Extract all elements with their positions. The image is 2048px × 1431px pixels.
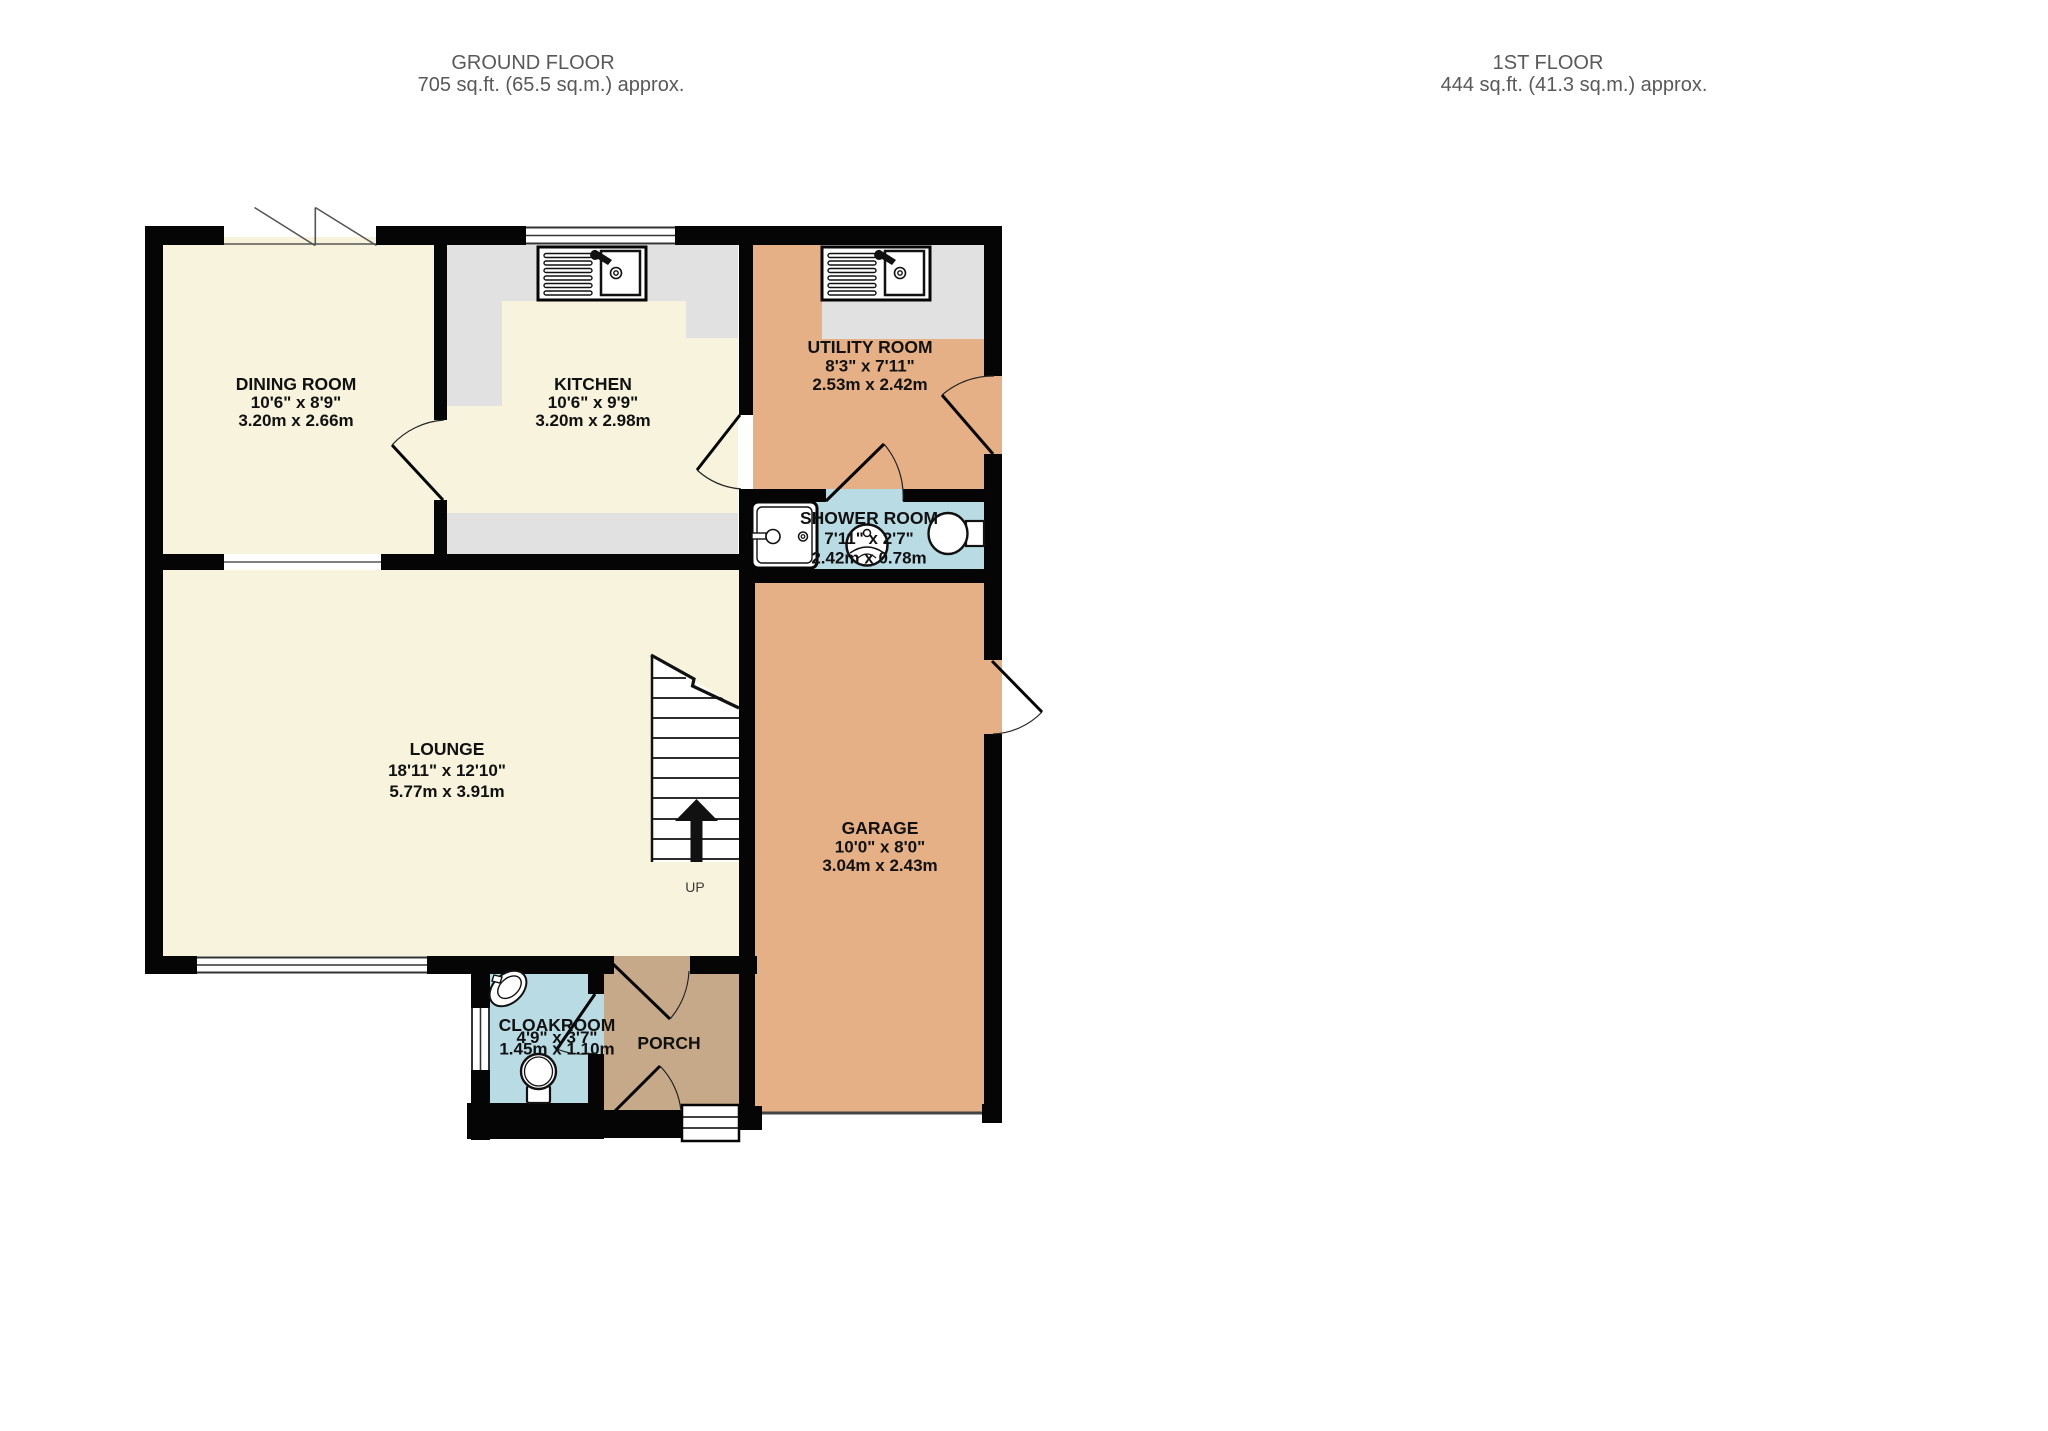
svg-text:2.42m x 0.78m: 2.42m x 0.78m	[811, 549, 926, 568]
svg-text:1.45m x 1.10m: 1.45m x 1.10m	[499, 1040, 614, 1059]
svg-text:3.04m x 2.43m: 3.04m x 2.43m	[822, 856, 937, 875]
svg-text:GARAGE: GARAGE	[842, 818, 919, 838]
svg-text:18'11" x 12'10": 18'11" x 12'10"	[388, 761, 506, 780]
svg-text:5.77m x 3.91m: 5.77m x 3.91m	[389, 782, 504, 801]
svg-text:705 sq.ft. (65.5 sq.m.) approx: 705 sq.ft. (65.5 sq.m.) approx.	[418, 74, 685, 96]
svg-text:444 sq.ft. (41.3 sq.m.) approx: 444 sq.ft. (41.3 sq.m.) approx.	[1441, 74, 1708, 96]
svg-text:GROUND FLOOR: GROUND FLOOR	[451, 52, 614, 74]
svg-text:UP: UP	[685, 879, 704, 895]
svg-text:10'0" x 8'0": 10'0" x 8'0"	[835, 838, 925, 857]
svg-text:2.53m x 2.42m: 2.53m x 2.42m	[812, 375, 927, 394]
svg-text:3.20m x 2.98m: 3.20m x 2.98m	[535, 411, 650, 430]
svg-text:DINING ROOM: DINING ROOM	[236, 374, 357, 394]
svg-text:10'6" x 9'9": 10'6" x 9'9"	[548, 393, 638, 412]
svg-text:UTILITY ROOM: UTILITY ROOM	[807, 337, 932, 357]
svg-text:10'6" x 8'9": 10'6" x 8'9"	[251, 393, 341, 412]
svg-text:7'11" x 2'7": 7'11" x 2'7"	[824, 529, 913, 548]
svg-text:3.20m x 2.66m: 3.20m x 2.66m	[238, 411, 353, 430]
svg-text:8'3" x 7'11": 8'3" x 7'11"	[825, 357, 914, 376]
svg-text:PORCH: PORCH	[637, 1033, 700, 1053]
svg-text:1ST FLOOR: 1ST FLOOR	[1493, 52, 1604, 74]
svg-text:KITCHEN: KITCHEN	[554, 374, 632, 394]
svg-text:SHOWER ROOM: SHOWER ROOM	[800, 508, 938, 528]
svg-text:LOUNGE: LOUNGE	[410, 739, 485, 759]
